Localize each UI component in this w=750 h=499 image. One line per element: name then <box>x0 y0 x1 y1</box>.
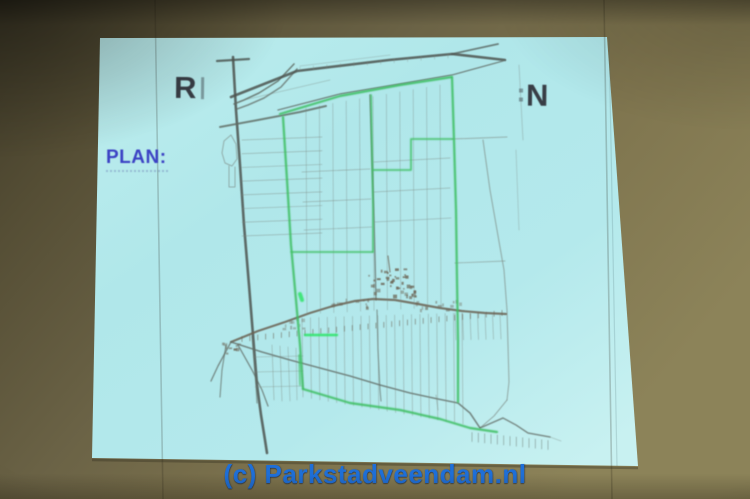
photo: R N PLAN: (c) Parkstadveendam.nl <box>0 0 750 499</box>
title-fragment-right: N <box>526 78 550 114</box>
projection-scene <box>0 0 750 499</box>
title-fragment-left: R <box>174 70 198 106</box>
watermark: (c) Parkstadveendam.nl <box>224 459 527 490</box>
title-letter-remnant <box>201 77 204 99</box>
title-letter-remnant <box>519 98 523 102</box>
plan-label: PLAN: <box>106 147 167 169</box>
title-letter-remnant <box>519 89 523 93</box>
plan-underline <box>106 170 168 172</box>
